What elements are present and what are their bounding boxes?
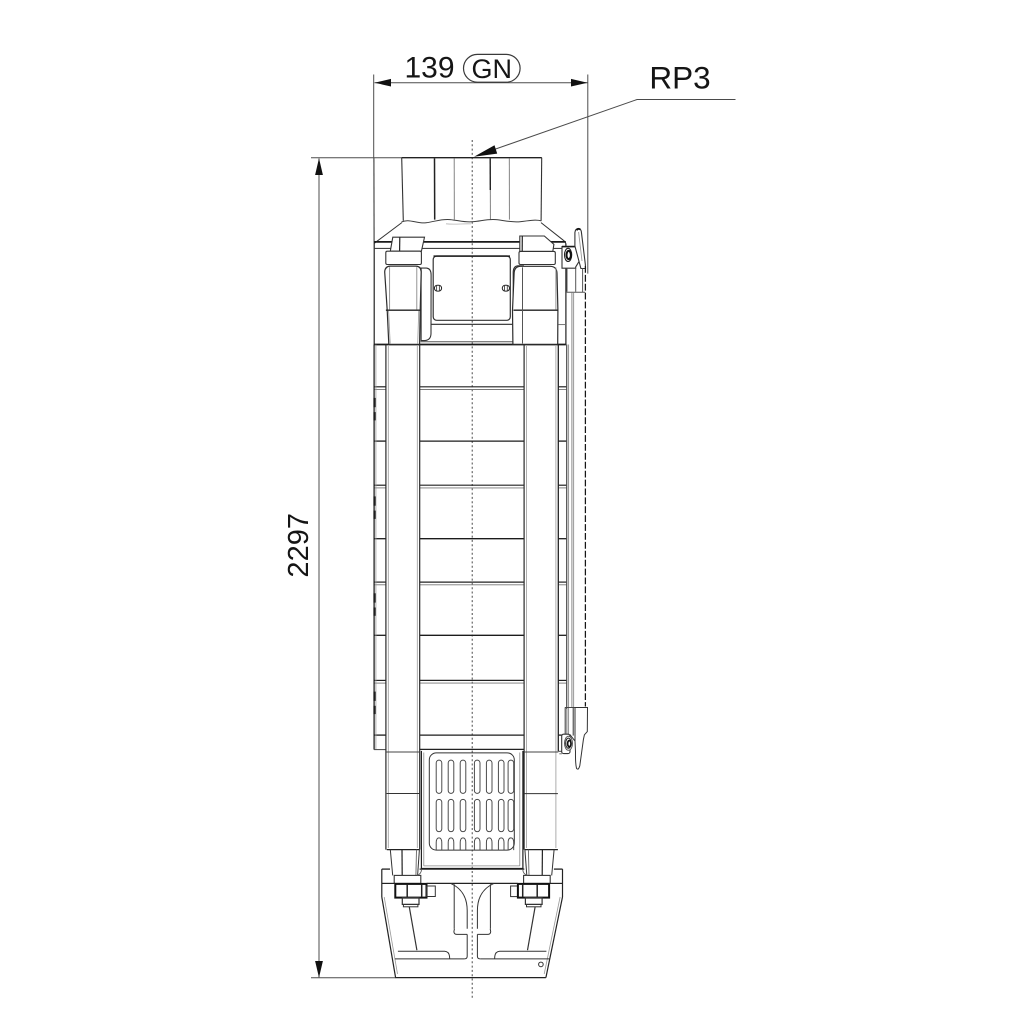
svg-text:2297: 2297 <box>283 513 315 578</box>
svg-text:GN: GN <box>472 54 513 84</box>
svg-text:139: 139 <box>404 52 454 85</box>
svg-text:RP3: RP3 <box>649 60 710 96</box>
